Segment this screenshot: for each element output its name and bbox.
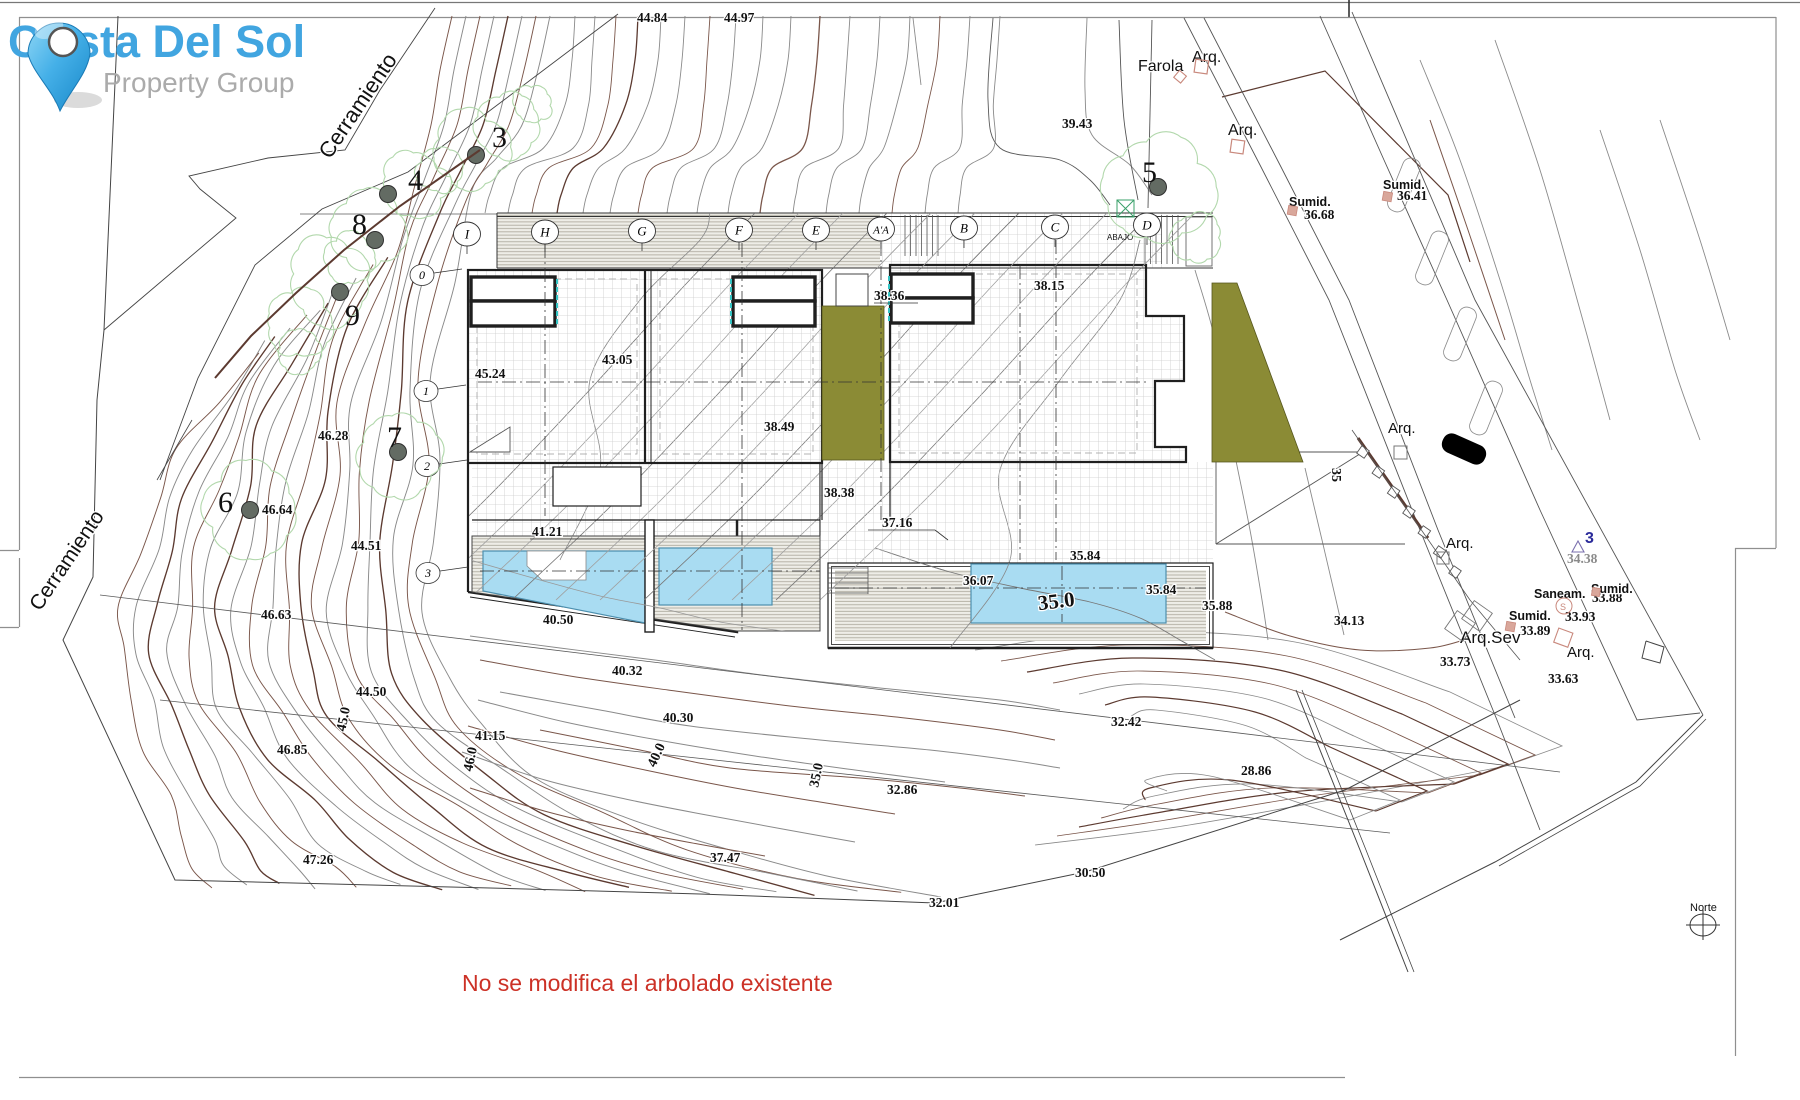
svg-text:44.84: 44.84 (637, 10, 668, 25)
svg-text:Arq.: Arq. (1388, 420, 1416, 437)
svg-text:3: 3 (492, 121, 507, 154)
svg-text:28.86: 28.86 (1241, 763, 1272, 778)
svg-text:39.43: 39.43 (1062, 116, 1093, 131)
svg-text:S: S (1560, 602, 1566, 612)
svg-text:Farola: Farola (1138, 58, 1183, 75)
svg-text:Arq.: Arq. (1228, 122, 1257, 139)
svg-text:C: C (1051, 220, 1060, 235)
svg-text:A'A: A'A (872, 225, 889, 237)
svg-text:33.63: 33.63 (1548, 671, 1579, 686)
svg-text:40.30: 40.30 (663, 710, 694, 725)
svg-text:43.05: 43.05 (602, 352, 633, 367)
svg-text:40.32: 40.32 (612, 663, 643, 678)
svg-text:46.28: 46.28 (318, 428, 349, 443)
svg-text:35.84: 35.84 (1070, 548, 1101, 563)
svg-text:F: F (734, 223, 744, 238)
svg-text:sta Del Sol: sta Del Sol (75, 16, 305, 67)
svg-text:No se modifica el arbolado exi: No se modifica el arbolado existente (462, 970, 833, 996)
svg-text:47.26: 47.26 (303, 852, 334, 867)
svg-text:35.0: 35.0 (1036, 587, 1075, 615)
svg-text:33.89: 33.89 (1520, 623, 1551, 638)
svg-text:3: 3 (1585, 530, 1594, 547)
svg-text:35.88: 35.88 (1202, 598, 1233, 613)
svg-text:38.49: 38.49 (764, 419, 795, 434)
svg-text:I: I (464, 227, 470, 242)
svg-text:Arq.: Arq. (1446, 535, 1474, 552)
svg-text:46.85: 46.85 (277, 742, 308, 757)
svg-text:35: 35 (1328, 468, 1343, 482)
svg-text:41.21: 41.21 (532, 524, 563, 539)
svg-text:44.97: 44.97 (724, 10, 755, 25)
svg-text:Sumid.: Sumid. (1383, 178, 1425, 192)
svg-text:E: E (811, 223, 820, 238)
svg-text:G: G (637, 224, 647, 239)
svg-text:38.38: 38.38 (824, 485, 855, 500)
svg-text:7: 7 (387, 421, 402, 454)
svg-text:36.68: 36.68 (1304, 207, 1335, 222)
svg-text:D: D (1141, 218, 1152, 233)
svg-text:41.15: 41.15 (475, 728, 506, 743)
svg-text:46.64: 46.64 (262, 502, 293, 517)
svg-text:1: 1 (423, 384, 429, 398)
svg-text:38.36: 38.36 (874, 288, 905, 303)
svg-text:8: 8 (352, 208, 367, 241)
svg-text:34.38: 34.38 (1567, 551, 1598, 566)
svg-text:37.47: 37.47 (710, 850, 741, 865)
svg-text:37.16: 37.16 (882, 515, 913, 530)
svg-text:32.86: 32.86 (887, 782, 918, 797)
svg-text:44.50: 44.50 (356, 684, 387, 699)
svg-text:5: 5 (1142, 156, 1157, 189)
svg-text:33.73: 33.73 (1440, 654, 1471, 669)
svg-text:6: 6 (218, 486, 233, 519)
svg-text:30.50: 30.50 (1075, 865, 1106, 880)
svg-text:Property Group: Property Group (103, 67, 294, 98)
svg-text:40.50: 40.50 (543, 612, 574, 627)
svg-text:44.51: 44.51 (351, 538, 382, 553)
svg-text:H: H (539, 225, 550, 240)
svg-text:35.84: 35.84 (1146, 582, 1177, 597)
svg-text:B: B (960, 221, 968, 236)
svg-text:34.13: 34.13 (1334, 613, 1365, 628)
svg-text:32.01: 32.01 (929, 895, 960, 910)
svg-text:45.24: 45.24 (475, 366, 506, 381)
svg-text:0: 0 (419, 268, 425, 282)
svg-text:3: 3 (424, 566, 431, 580)
svg-text:4: 4 (408, 164, 423, 197)
svg-text:36.07: 36.07 (963, 573, 994, 588)
svg-text:32.42: 32.42 (1111, 714, 1142, 729)
svg-text:Arq.: Arq. (1192, 49, 1221, 66)
svg-text:46.63: 46.63 (261, 607, 292, 622)
svg-text:Sumid.: Sumid. (1509, 609, 1551, 623)
svg-text:2: 2 (424, 459, 430, 473)
svg-text:Arq.: Arq. (1567, 644, 1595, 661)
svg-text:38.15: 38.15 (1034, 278, 1065, 293)
svg-text:9: 9 (345, 299, 360, 332)
